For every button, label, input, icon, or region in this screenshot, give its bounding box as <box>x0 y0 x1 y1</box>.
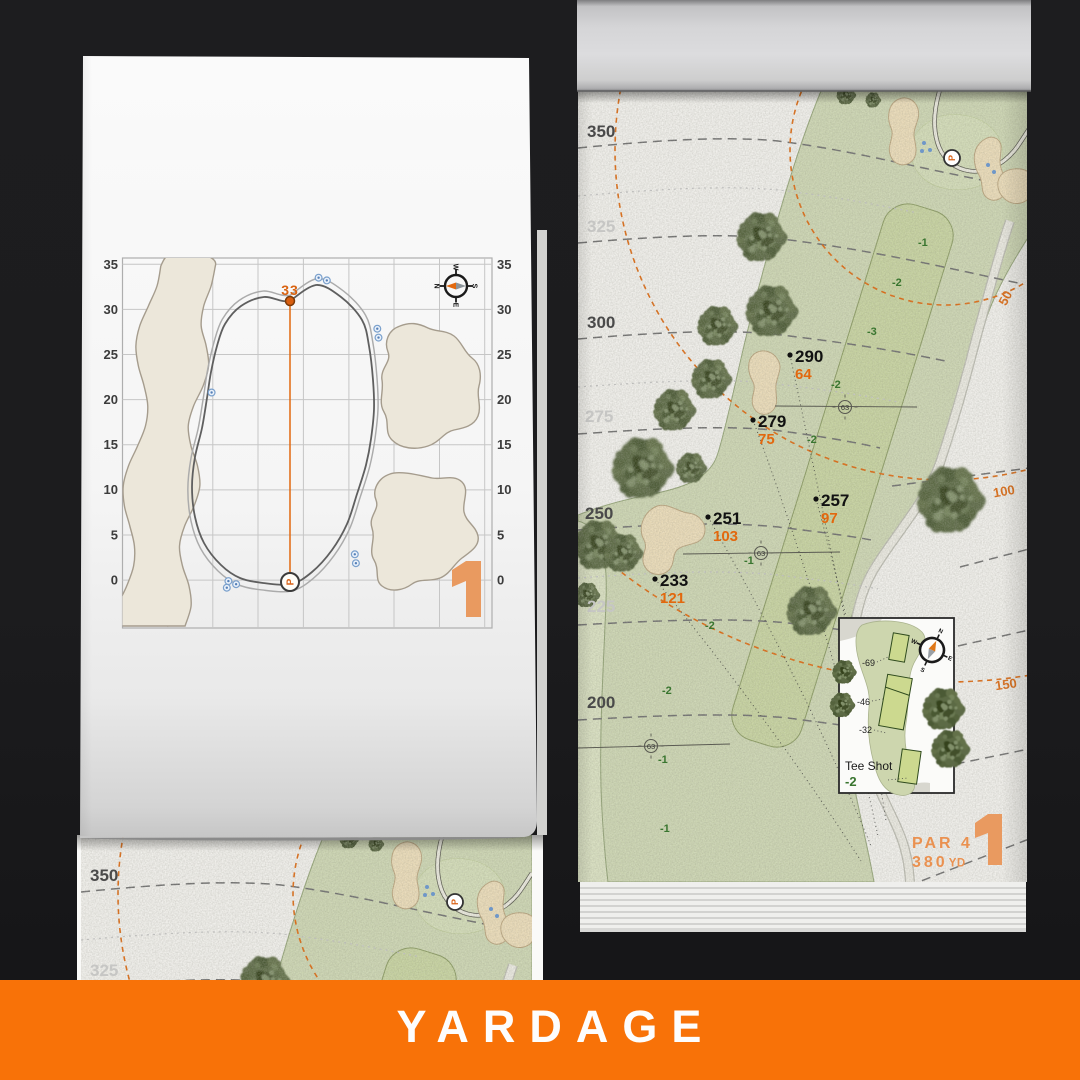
svg-text:20: 20 <box>497 392 511 407</box>
svg-text:35: 35 <box>104 257 118 272</box>
svg-text:5: 5 <box>111 528 118 543</box>
svg-text:N: N <box>433 283 440 288</box>
svg-text:0: 0 <box>497 573 504 588</box>
svg-text:YARDAGE: YARDAGE <box>397 1001 716 1052</box>
svg-text:S: S <box>471 284 478 289</box>
svg-text:10: 10 <box>497 482 511 497</box>
svg-text:10: 10 <box>104 482 118 497</box>
svg-text:33: 33 <box>281 282 299 298</box>
svg-text:E: E <box>452 303 459 308</box>
svg-text:25: 25 <box>104 347 118 362</box>
svg-text:W: W <box>452 264 459 271</box>
svg-text:35: 35 <box>497 257 511 272</box>
svg-text:P: P <box>286 578 297 585</box>
svg-text:25: 25 <box>497 347 511 362</box>
svg-text:15: 15 <box>104 437 118 452</box>
svg-text:0: 0 <box>111 573 118 588</box>
svg-text:20: 20 <box>104 392 118 407</box>
svg-text:5: 5 <box>497 528 504 543</box>
svg-text:30: 30 <box>497 302 511 317</box>
svg-text:15: 15 <box>497 437 511 452</box>
svg-text:30: 30 <box>104 302 118 317</box>
